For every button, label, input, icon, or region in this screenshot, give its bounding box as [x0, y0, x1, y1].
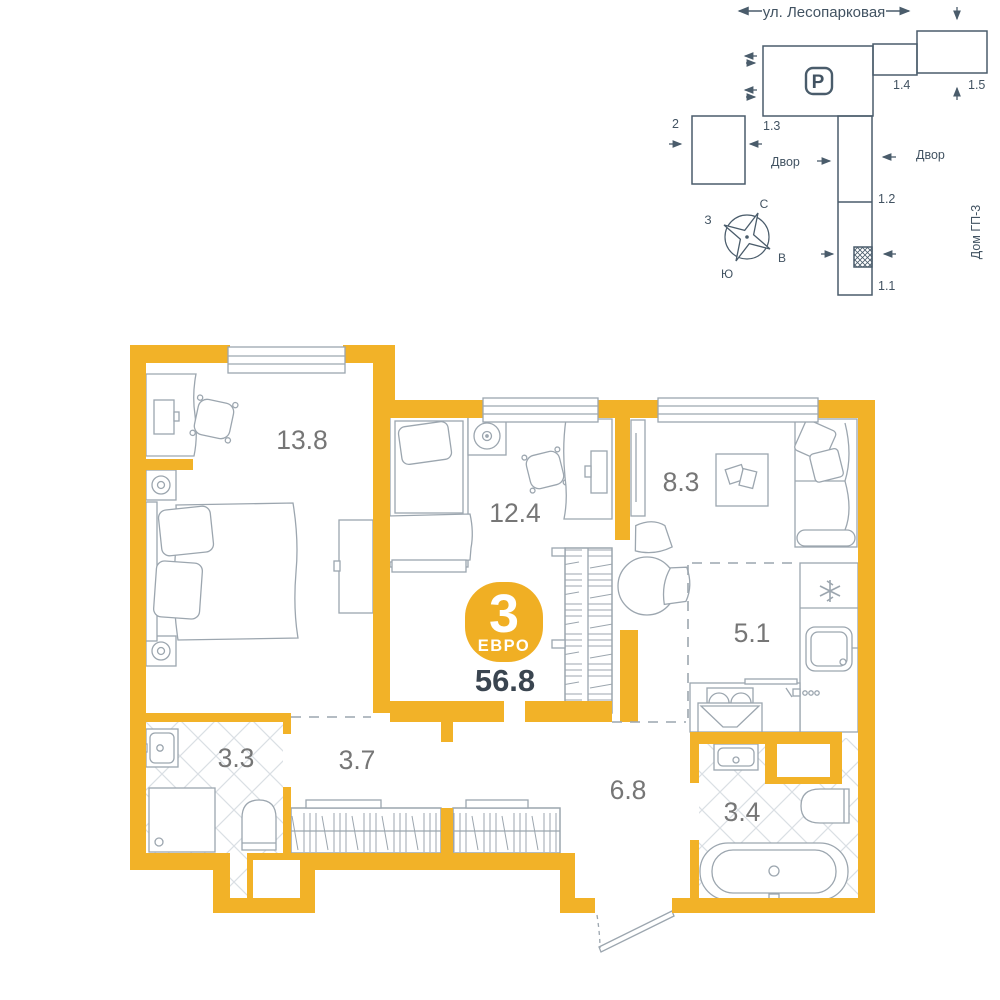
room-area-bathroom-2: 3.4 — [724, 797, 761, 827]
floorplan-canvas: ул. Лесопарковая P 1.3 1.4 1.5 1.2 1.1 2… — [0, 0, 1000, 1000]
desk-chair-icon-2 — [521, 446, 568, 493]
ceiling-light-icon — [468, 417, 506, 455]
label-2: 2 — [672, 117, 679, 131]
apartment-badge: 3 ЕВРО 56.8 — [465, 582, 543, 698]
compass-south: Ю — [721, 267, 733, 281]
windows — [228, 347, 818, 422]
window-icon-living — [658, 398, 818, 422]
house-gp3-label: Дом ГП-3 — [969, 205, 983, 260]
room-area-bedroom-2: 12.4 — [489, 498, 541, 528]
site-building-11-12 — [838, 116, 872, 295]
current-building-marker — [854, 247, 872, 267]
label-1-3: 1.3 — [763, 119, 780, 133]
room-area-kitchen: 5.1 — [734, 618, 771, 648]
bathtub-icon — [700, 843, 848, 900]
label-1-2: 1.2 — [878, 192, 895, 206]
yard-label-left: Двор — [771, 155, 800, 169]
shower-icon — [149, 788, 215, 852]
yard-label-right: Двор — [916, 148, 945, 162]
entrance-door-icon — [597, 911, 674, 952]
site-building-14 — [873, 44, 917, 75]
nightstand-icon — [146, 470, 176, 500]
sofa-icon — [793, 419, 857, 547]
room-area-living: 8.3 — [663, 467, 700, 497]
room-area-hallway: 3.7 — [339, 745, 376, 775]
compass-north: С — [760, 197, 769, 211]
street-label: ул. Лесопарковая — [763, 4, 886, 21]
badge-rooms-count: 3 — [489, 584, 519, 644]
double-bed-icon — [146, 502, 298, 641]
badge-type-label: ЕВРО — [478, 637, 531, 655]
toilet-icon — [242, 800, 276, 850]
site-building-15 — [917, 31, 987, 73]
site-plan-labels: ул. Лесопарковая P 1.3 1.4 1.5 1.2 1.1 2… — [672, 4, 985, 293]
compass-icon — [724, 213, 770, 261]
wardrobe-icon — [291, 800, 441, 853]
compass-east: В — [778, 251, 786, 265]
tall-wardrobe-icon — [552, 548, 612, 713]
site-building-2 — [692, 116, 745, 184]
room-area-bedroom-1: 13.8 — [276, 425, 328, 455]
desk-icon-2 — [564, 419, 612, 519]
bathroom-2-niche — [777, 744, 830, 777]
compass-west: З — [704, 213, 711, 227]
window-icon-bedroom-2 — [483, 398, 598, 422]
total-area-value: 56.8 — [475, 663, 535, 698]
room-area-bathroom-1: 3.3 — [218, 743, 255, 773]
label-1-1: 1.1 — [878, 279, 895, 293]
tv-unit-icon — [631, 420, 645, 516]
coffee-table-icon — [716, 454, 768, 506]
toilet-icon-2 — [801, 789, 849, 823]
parking-letter: P — [812, 72, 825, 93]
wardrobe-icon-2 — [453, 800, 560, 853]
label-1-5: 1.5 — [968, 78, 985, 92]
floorplan-page: ул. Лесопарковая P 1.3 1.4 1.5 1.2 1.1 2… — [0, 0, 1000, 1000]
room-area-entrance-hall: 6.8 — [610, 775, 647, 805]
label-1-4: 1.4 — [893, 78, 910, 92]
desk-icon — [146, 374, 196, 456]
single-bed-icon — [386, 417, 472, 572]
dresser-icon — [334, 520, 373, 613]
window-icon-bedroom-1 — [228, 347, 345, 373]
